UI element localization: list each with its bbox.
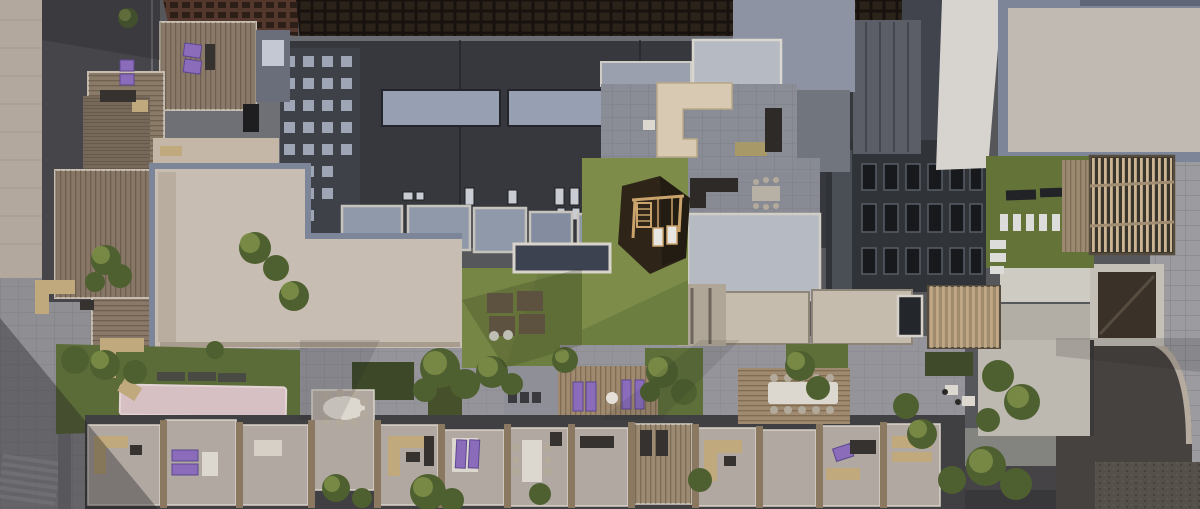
purple-lounger (172, 450, 198, 461)
dark-mat (205, 44, 215, 70)
purple-lounger (120, 60, 134, 71)
hedge-right (925, 352, 973, 376)
dark-sofa (690, 178, 738, 192)
upper-dining-table (752, 186, 780, 201)
tan-sofa (100, 338, 144, 352)
swing-seat (653, 228, 663, 246)
tan-bench (892, 452, 932, 462)
dark-appliance (243, 104, 259, 132)
round-table (606, 392, 618, 404)
pergola-slats (1092, 158, 1172, 252)
lounge-mat (202, 452, 218, 476)
skylight-large (514, 244, 610, 272)
pale-roof-a (1000, 266, 1092, 302)
dark-table (130, 445, 142, 455)
chair (955, 399, 961, 405)
pale-roof-b (1000, 304, 1092, 340)
grill (550, 432, 562, 446)
dark-column-block (853, 20, 921, 154)
pergola-deck-slats (1062, 160, 1090, 252)
dark-table (724, 456, 736, 466)
media-unit (424, 436, 434, 466)
purple-lounger (183, 59, 202, 74)
dark-table (80, 300, 94, 310)
big-roof-edge-band (1080, 0, 1200, 6)
purple-lounger (183, 43, 202, 58)
olive-sofa (735, 142, 767, 156)
coffee-table (406, 452, 420, 462)
aerial-render-stage (0, 0, 1200, 509)
tan-sofa (388, 436, 424, 448)
purple-lounger (455, 440, 466, 468)
tan-sofa (704, 440, 742, 453)
wood-slat-texture (928, 286, 1000, 348)
purple-lounger (172, 464, 198, 475)
tan-sofa (35, 294, 49, 314)
pergola (1062, 156, 1174, 254)
tan-sofa (388, 448, 400, 476)
purple-lounger (573, 382, 583, 411)
tan-sofa (35, 280, 75, 294)
desk (850, 440, 876, 454)
aerial-architectural-render (0, 0, 1200, 509)
tan-sofa (826, 468, 860, 480)
penthouse-window (262, 40, 284, 66)
purple-lounger (468, 440, 479, 468)
dark-bench (100, 90, 136, 102)
big-roof-top-right (1008, 8, 1200, 152)
purple-lounger (586, 382, 596, 411)
dark-sofa (690, 192, 706, 208)
planter-box (640, 430, 652, 456)
bocce-court (120, 385, 286, 418)
dining-table-small (254, 440, 282, 456)
left-strip-benches (157, 372, 246, 382)
mega-roof-shading (158, 172, 176, 342)
chair (942, 389, 948, 395)
roof-skylight-small (898, 296, 922, 336)
swing-seat (667, 226, 677, 244)
purple-lounger (120, 74, 134, 85)
beige-stone-wall (0, 0, 42, 278)
dark-sofa-upper (765, 108, 782, 152)
cobblestone-texture (1095, 462, 1200, 509)
dining-table (522, 440, 542, 482)
kitchen-counter (580, 436, 614, 448)
side-table (643, 120, 655, 130)
cafe-table (962, 396, 975, 406)
planter-box (656, 430, 668, 456)
beige-roof-bars (725, 290, 912, 344)
tan-bench (160, 146, 182, 156)
